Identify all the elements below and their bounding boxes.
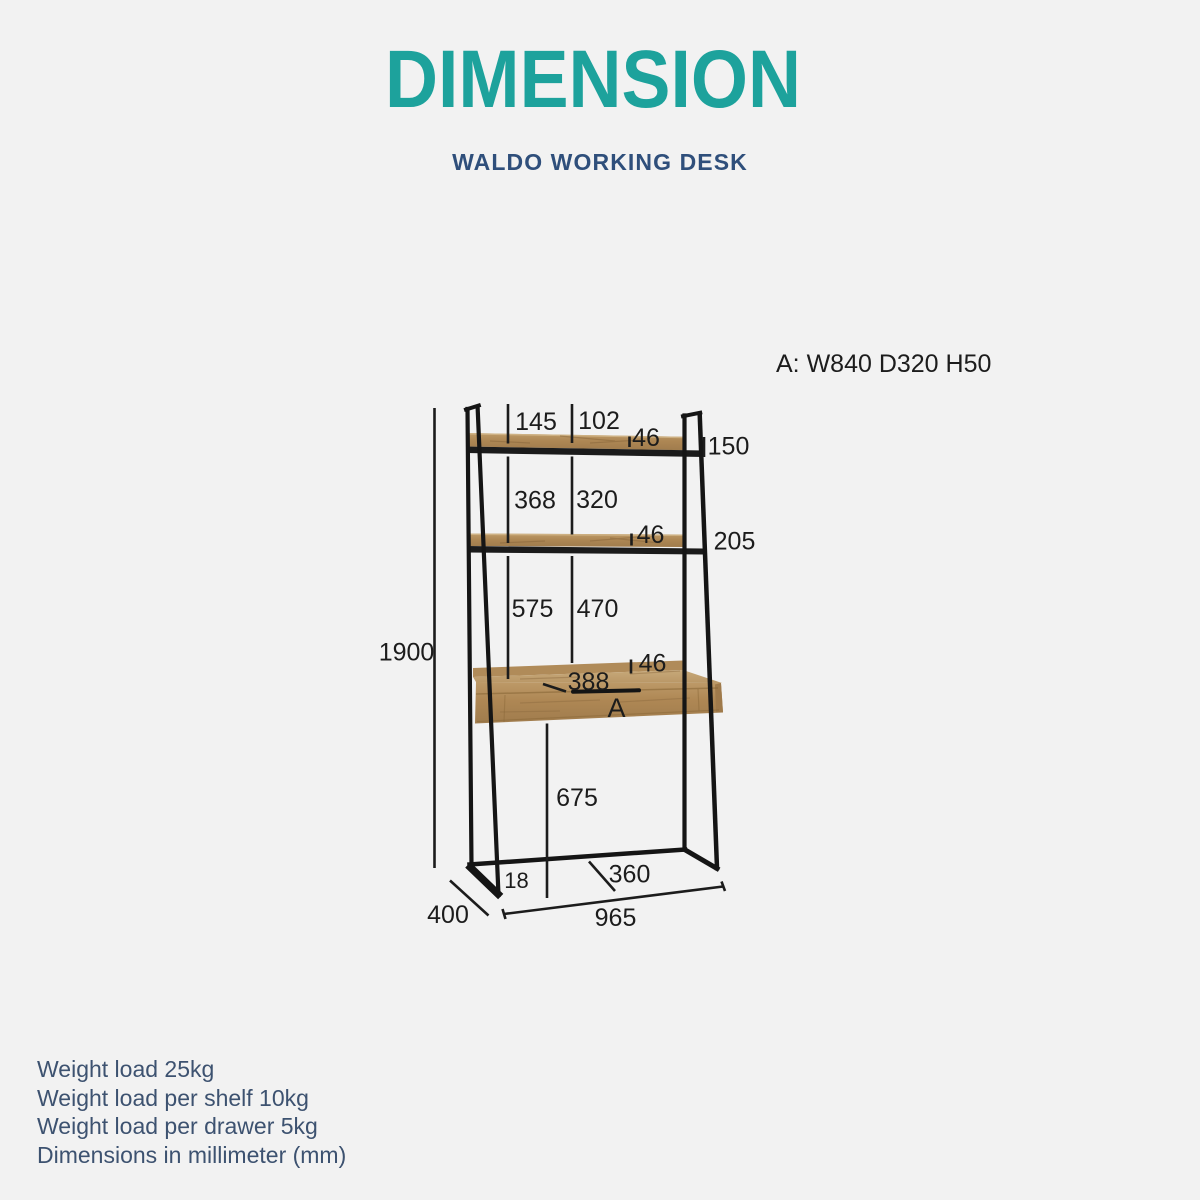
- svg-text:A: W840 D320 H50: A: W840 D320 H50: [776, 350, 991, 378]
- svg-text:145: 145: [515, 408, 557, 436]
- svg-text:46: 46: [637, 521, 665, 549]
- svg-text:575: 575: [512, 595, 554, 623]
- svg-text:18: 18: [504, 868, 528, 893]
- svg-text:205: 205: [714, 528, 756, 556]
- svg-text:368: 368: [514, 487, 556, 515]
- svg-text:675: 675: [556, 784, 598, 812]
- svg-text:965: 965: [595, 904, 637, 932]
- svg-text:46: 46: [632, 424, 660, 452]
- svg-text:150: 150: [708, 433, 750, 461]
- svg-text:400: 400: [427, 901, 469, 929]
- svg-text:1900: 1900: [379, 639, 435, 667]
- svg-text:102: 102: [578, 407, 620, 435]
- svg-text:46: 46: [639, 650, 667, 678]
- svg-text:470: 470: [577, 595, 619, 623]
- svg-text:388: 388: [568, 668, 610, 696]
- svg-text:A: A: [607, 693, 625, 723]
- svg-text:320: 320: [576, 486, 618, 514]
- svg-text:360: 360: [609, 861, 651, 889]
